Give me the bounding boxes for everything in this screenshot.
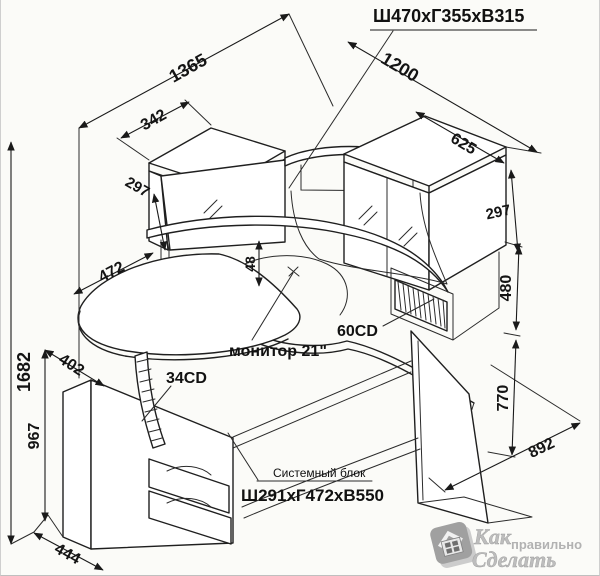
dimension-tray-offset: 402: [45, 350, 104, 386]
hutch-size-label: Ш470хГ355хВ315: [373, 6, 524, 26]
watermark-word3: Сделать: [472, 547, 556, 572]
blueprint-canvas: 1365 1200 342 297 625 297 472 402 48 480…: [0, 0, 600, 576]
side-panel: [411, 331, 488, 523]
corner-desk-drawing: 1365 1200 342 297 625 297 472 402 48 480…: [1, 0, 600, 576]
dim-1365: 1365: [166, 50, 211, 87]
dimension-hutch-height: 480: [498, 246, 519, 330]
dim-480: 480: [498, 275, 515, 302]
cd60-label: 60CD: [337, 323, 378, 340]
cd34-label: 34CD: [166, 370, 207, 387]
system-unit-size-label: Ш291хГ472хВ550: [241, 486, 384, 505]
dim-297-left: 297: [122, 174, 152, 201]
dimension-overall-left: 1365: [79, 14, 289, 128]
dimension-total-height: 1682: [11, 142, 34, 544]
monitor-position-mark: [288, 267, 299, 276]
dim-402: 402: [55, 351, 87, 380]
watermark-logo: [429, 520, 478, 570]
monitor-label: монитор 21": [229, 343, 327, 360]
watermark: Как правильно Сделать: [429, 520, 582, 572]
dim-48: 48: [242, 256, 258, 272]
system-unit-callout: Системный блок Ш291хГ472хВ550: [228, 433, 384, 505]
dim-770: 770: [495, 385, 512, 412]
dim-967: 967: [26, 423, 43, 450]
system-unit-label: Системный блок: [273, 466, 366, 480]
dim-892: 892: [526, 435, 558, 462]
dim-342: 342: [138, 106, 170, 134]
dimension-left-cabinet-width: 342: [121, 102, 189, 138]
dimension-desk-height: 770: [495, 340, 516, 455]
dim-1200: 1200: [378, 48, 423, 86]
watermark-word1: Как: [473, 524, 512, 549]
dim-1682: 1682: [14, 352, 34, 392]
